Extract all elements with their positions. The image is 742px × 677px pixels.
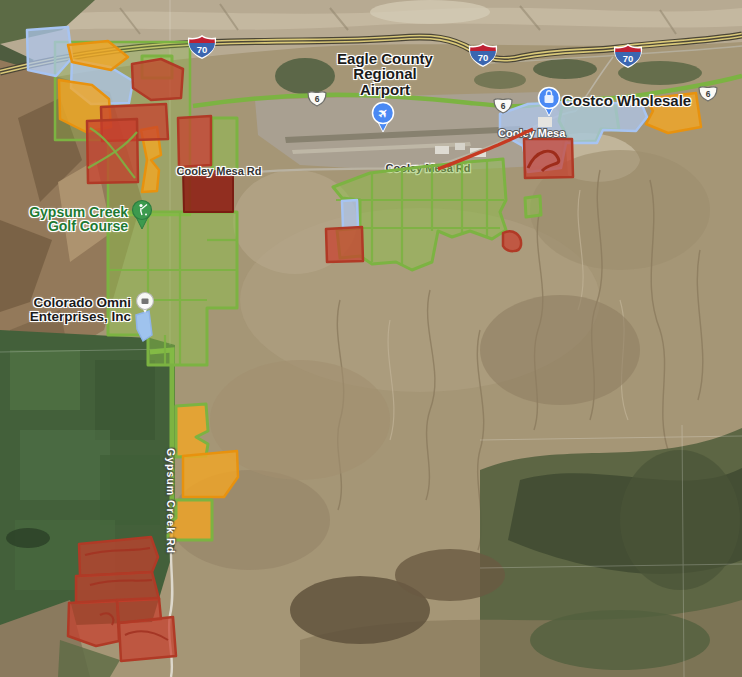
poi-label-costco[interactable]: Costco Wholesale: [562, 93, 691, 108]
svg-text:70: 70: [478, 52, 489, 63]
golf-label-line2: Golf Course: [29, 219, 128, 233]
costco-building-footprint: [538, 117, 552, 127]
svg-text:70: 70: [623, 53, 634, 64]
airport-label-line1: Eagle County: [337, 51, 433, 66]
satellite-map-canvas[interactable]: Cooley Mesa Rd: [0, 0, 742, 677]
svg-text:70: 70: [197, 44, 208, 55]
airport-label-line2: Regional: [337, 66, 433, 81]
airport-label-line3: Airport: [337, 82, 433, 97]
road-label-cooley-mesa-left: Cooley Mesa Rd: [177, 166, 262, 177]
omni-label-line2: Enterprises, Inc: [30, 310, 131, 324]
poi-label-airport[interactable]: Eagle County Regional Airport: [337, 51, 433, 97]
briefcase-icon: [142, 299, 149, 305]
omni-label-line1: Colorado Omni: [30, 296, 131, 310]
road-label-gypsum-creek-rd: Gypsum Creek Rd: [165, 448, 177, 554]
svg-text:6: 6: [315, 94, 320, 104]
poi-label-golf-course[interactable]: Gypsum Creek Golf Course: [29, 205, 128, 234]
svg-text:6: 6: [501, 101, 506, 111]
svg-text:6: 6: [706, 89, 711, 99]
poi-label-omni[interactable]: Colorado Omni Enterprises, Inc: [30, 296, 131, 324]
